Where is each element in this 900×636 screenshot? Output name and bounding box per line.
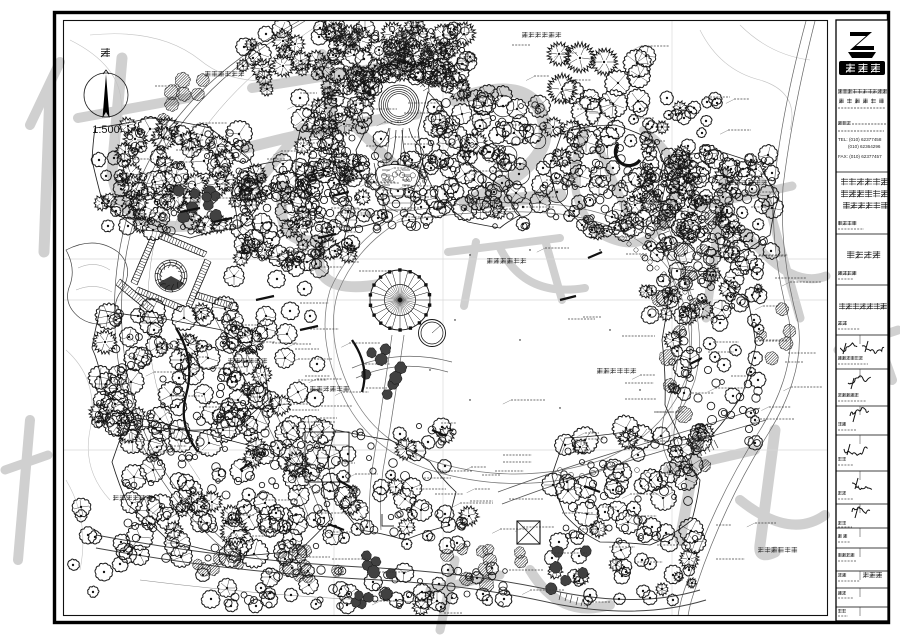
svg-text:1:500: 1:500 <box>92 124 120 136</box>
svg-text:(010) 62364296: (010) 62364296 <box>848 144 881 149</box>
svg-text:TEL: (010) 62377458: TEL: (010) 62377458 <box>838 137 882 142</box>
svg-text:FAX: (010) 62377457: FAX: (010) 62377457 <box>838 154 882 159</box>
